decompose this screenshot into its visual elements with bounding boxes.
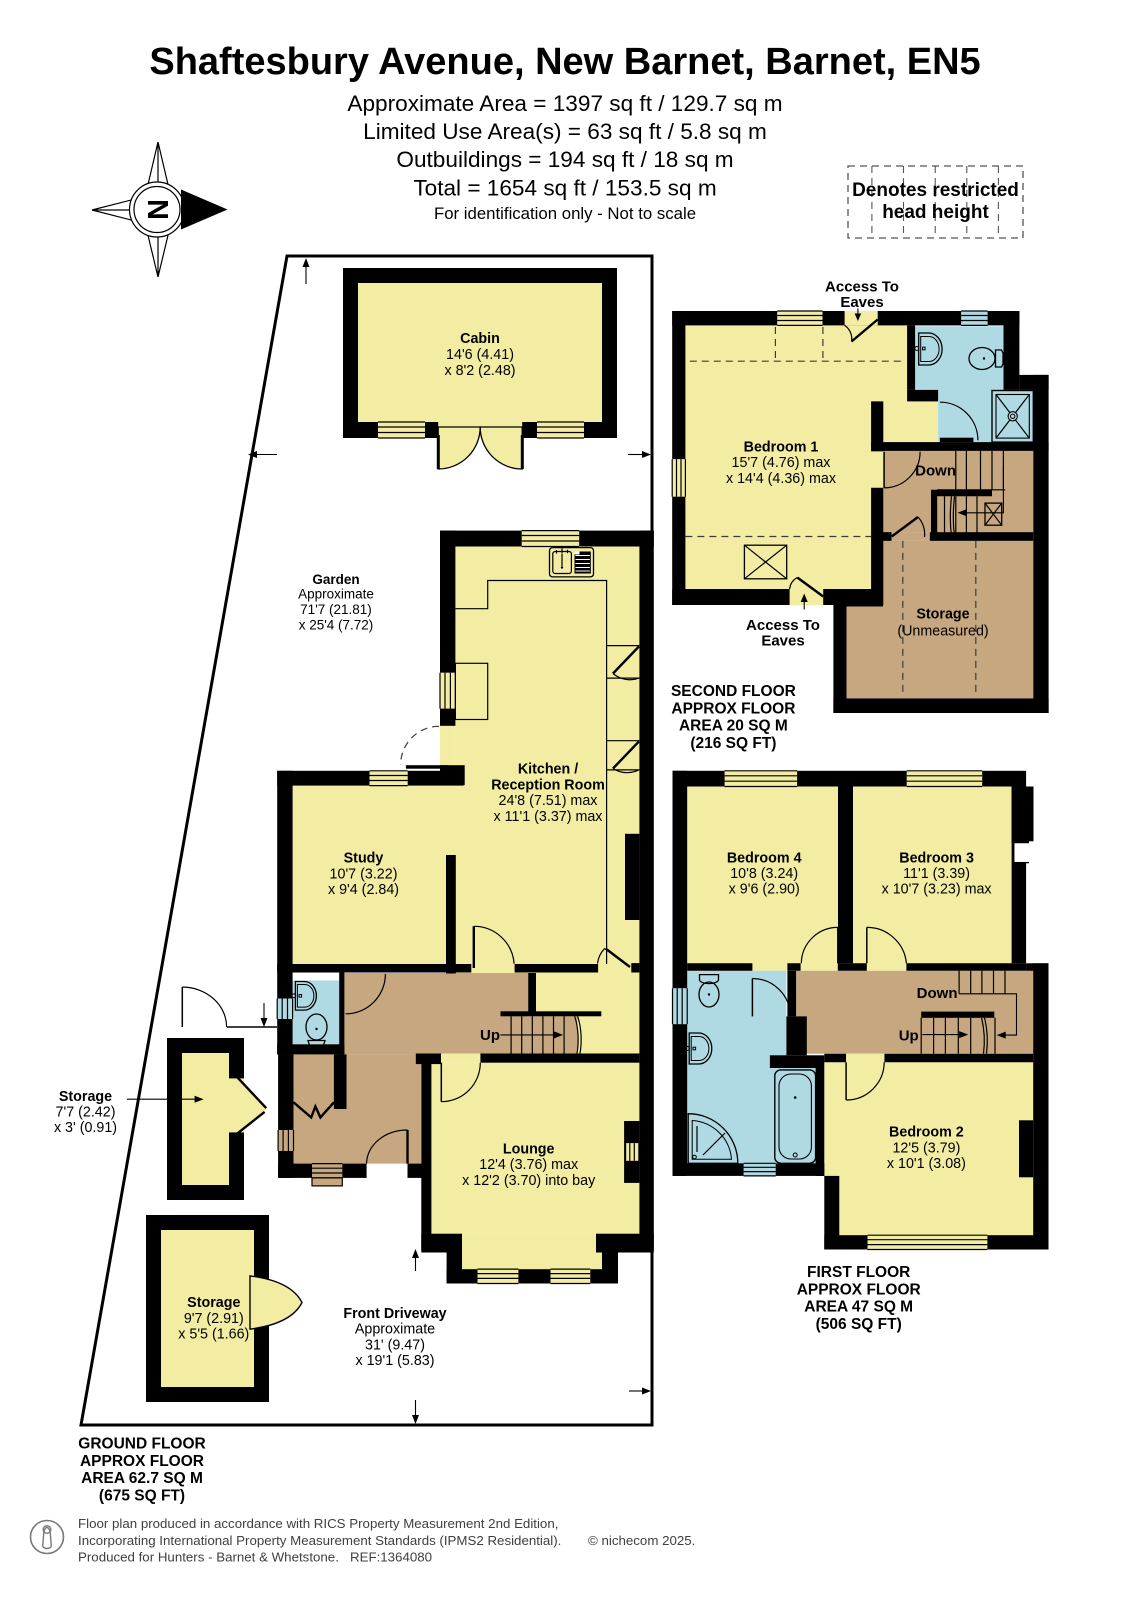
svg-text:9'7 (2.91): 9'7 (2.91) — [184, 1311, 244, 1327]
svg-text:10'7 (3.22): 10'7 (3.22) — [330, 866, 398, 882]
svg-text:10'8 (3.24): 10'8 (3.24) — [730, 866, 798, 882]
svg-text:Floor plan produced in accorda: Floor plan produced in accordance with R… — [78, 1516, 558, 1531]
svg-text:N: N — [141, 199, 173, 220]
svg-text:12'4 (3.76) max: 12'4 (3.76) max — [479, 1157, 578, 1173]
svg-text:Down: Down — [915, 463, 956, 480]
svg-text:Down: Down — [917, 985, 958, 1002]
svg-text:Total = 1654 sq ft / 153.5 sq: Total = 1654 sq ft / 153.5 sq m — [413, 175, 716, 200]
svg-text:x 9'6 (2.90): x 9'6 (2.90) — [729, 882, 800, 898]
svg-text:Bedroom 2: Bedroom 2 — [889, 1125, 964, 1141]
svg-text:AREA 47 SQ M: AREA 47 SQ M — [804, 1299, 913, 1316]
svg-text:Kitchen /: Kitchen / — [518, 762, 578, 778]
svg-text:APPROX FLOOR: APPROX FLOOR — [80, 1453, 204, 1470]
svg-text:AREA 20 SQ M: AREA 20 SQ M — [679, 718, 788, 735]
svg-text:Reception Room: Reception Room — [491, 777, 605, 793]
svg-text:Storage: Storage — [916, 607, 969, 623]
svg-text:Bedroom 4: Bedroom 4 — [727, 850, 802, 866]
svg-text:FIRST FLOOR: FIRST FLOOR — [807, 1264, 910, 1281]
svg-text:Produced for Hunters - Barnet: Produced for Hunters - Barnet & Whetston… — [78, 1550, 432, 1565]
svg-text:Study: Study — [344, 851, 384, 867]
svg-text:Bedroom 3: Bedroom 3 — [899, 850, 974, 866]
svg-text:x 10'1 (3.08): x 10'1 (3.08) — [887, 1156, 966, 1172]
svg-text:Approximate: Approximate — [298, 587, 374, 602]
svg-text:Approximate: Approximate — [355, 1322, 435, 1338]
svg-text:x 11'1 (3.37) max: x 11'1 (3.37) max — [494, 809, 603, 825]
svg-text:Up: Up — [480, 1027, 500, 1044]
svg-text:(675 SQ FT): (675 SQ FT) — [99, 1487, 185, 1504]
svg-text:x 14'4 (4.36) max: x 14'4 (4.36) max — [726, 471, 836, 487]
svg-text:Storage: Storage — [59, 1089, 112, 1105]
svg-text:SECOND FLOOR: SECOND FLOOR — [671, 683, 796, 700]
svg-text:(Unmeasured): (Unmeasured) — [897, 624, 988, 640]
svg-text:x 9'4 (2.84): x 9'4 (2.84) — [328, 882, 399, 898]
svg-text:Cabin: Cabin — [460, 331, 500, 347]
svg-text:Approximate Area = 1397 sq ft: Approximate Area = 1397 sq ft / 129.7 sq… — [347, 91, 782, 116]
svg-text:Storage: Storage — [187, 1295, 240, 1311]
svg-text:Shaftesbury Avenue, New Barnet: Shaftesbury Avenue, New Barnet, Barnet, … — [149, 41, 980, 83]
svg-text:11'1 (3.39): 11'1 (3.39) — [903, 866, 970, 882]
svg-text:Eaves: Eaves — [761, 632, 804, 649]
svg-text:31' (9.47): 31' (9.47) — [365, 1337, 425, 1353]
svg-text:Outbuildings = 194 sq ft / 18: Outbuildings = 194 sq ft / 18 sq m — [396, 147, 733, 172]
svg-text:head height: head height — [882, 202, 989, 223]
svg-text:12'5 (3.79): 12'5 (3.79) — [892, 1140, 960, 1156]
svg-text:x 3' (0.91): x 3' (0.91) — [54, 1120, 117, 1136]
svg-text:APPROX FLOOR: APPROX FLOOR — [671, 700, 795, 717]
svg-text:x 10'7 (3.23) max: x 10'7 (3.23) max — [882, 882, 992, 898]
svg-text:15'7 (4.76) max: 15'7 (4.76) max — [732, 455, 831, 471]
svg-text:Lounge: Lounge — [503, 1141, 555, 1157]
svg-text:Incorporating International Pr: Incorporating International Property Mea… — [78, 1533, 561, 1548]
svg-text:x 12'2 (3.70) into bay: x 12'2 (3.70) into bay — [462, 1173, 596, 1189]
svg-text:Garden: Garden — [312, 572, 359, 587]
svg-text:x 8'2 (2.48): x 8'2 (2.48) — [444, 363, 515, 379]
svg-text:x 5'5 (1.66): x 5'5 (1.66) — [178, 1327, 249, 1343]
svg-text:Eaves: Eaves — [840, 294, 883, 311]
svg-text:14'6 (4.41): 14'6 (4.41) — [446, 347, 514, 363]
svg-text:x 19'1 (5.83): x 19'1 (5.83) — [355, 1353, 434, 1369]
svg-text:7'7 (2.42): 7'7 (2.42) — [56, 1105, 116, 1121]
svg-text:Front Driveway: Front Driveway — [343, 1306, 446, 1322]
svg-text:Up: Up — [899, 1028, 919, 1045]
svg-text:Denotes restricted: Denotes restricted — [852, 180, 1019, 201]
svg-text:For identification only - Not: For identification only - Not to scale — [434, 204, 696, 223]
svg-text:Limited Use Area(s) = 63 sq ft: Limited Use Area(s) = 63 sq ft / 5.8 sq … — [363, 119, 767, 144]
svg-text:Bedroom 1: Bedroom 1 — [744, 439, 819, 455]
svg-text:24'8 (7.51) max: 24'8 (7.51) max — [499, 793, 598, 809]
svg-text:71'7 (21.81): 71'7 (21.81) — [300, 602, 372, 617]
svg-text:(216 SQ FT): (216 SQ FT) — [690, 735, 776, 752]
svg-text:APPROX FLOOR: APPROX FLOOR — [797, 1281, 921, 1298]
svg-text:© nichecom 2025.: © nichecom 2025. — [588, 1533, 695, 1548]
svg-text:AREA 62.7 SQ M: AREA 62.7 SQ M — [81, 1470, 203, 1487]
svg-text:x 25'4 (7.72): x 25'4 (7.72) — [299, 618, 374, 633]
svg-text:(506 SQ FT): (506 SQ FT) — [816, 1316, 902, 1333]
svg-text:GROUND FLOOR: GROUND FLOOR — [78, 1435, 205, 1452]
